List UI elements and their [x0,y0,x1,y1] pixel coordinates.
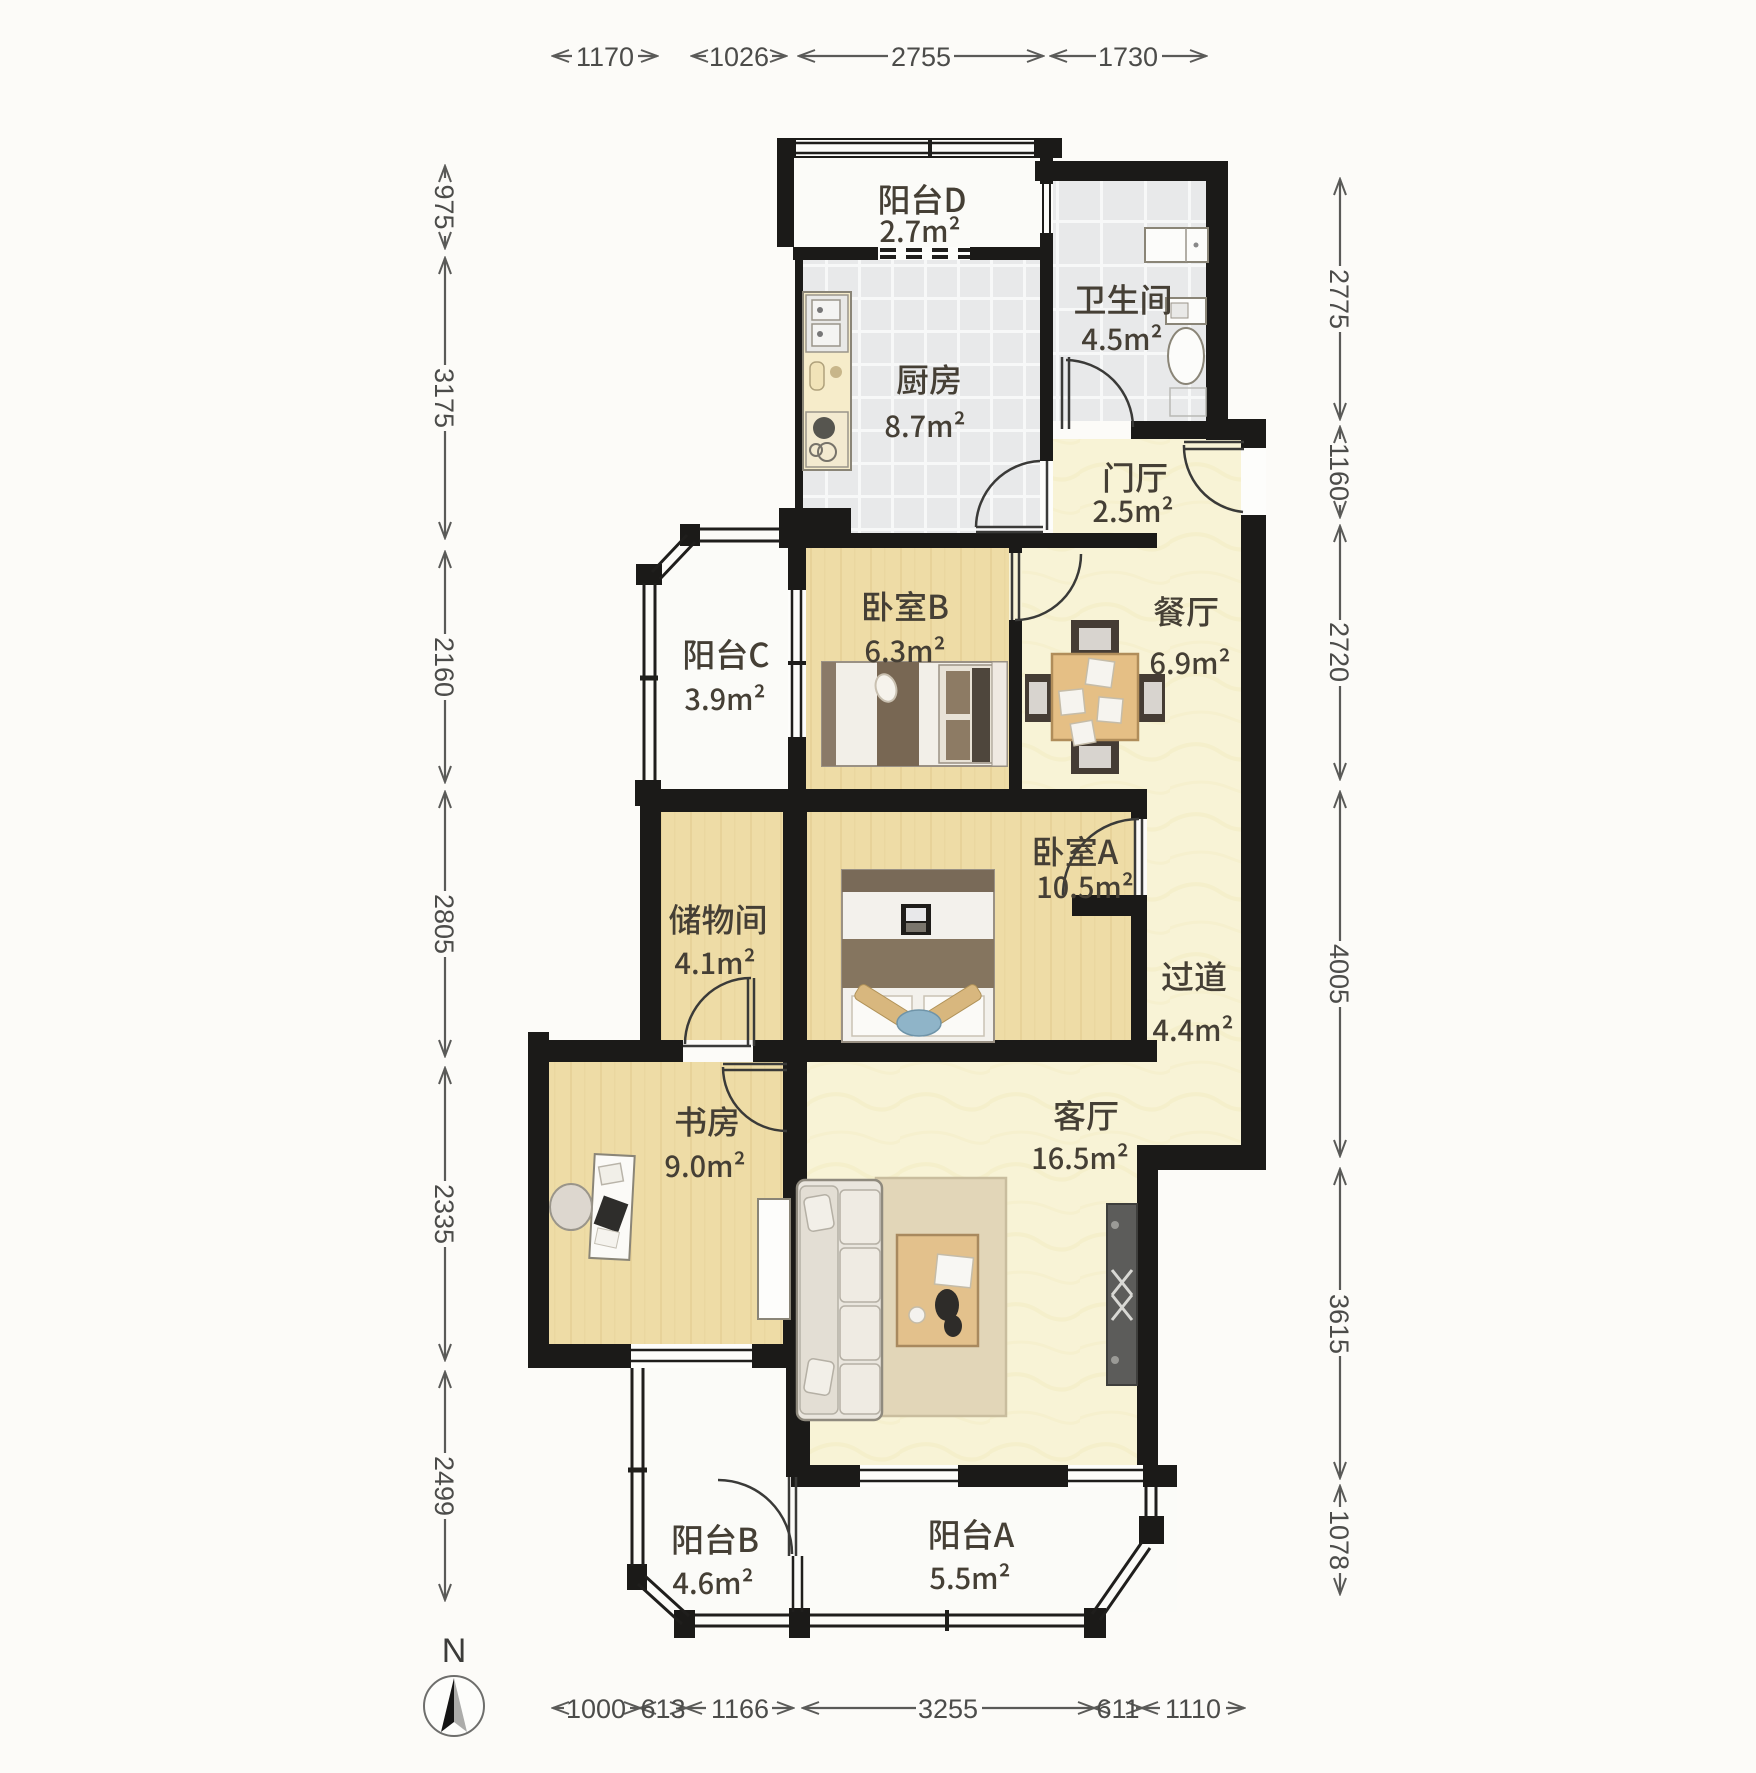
svg-text:3175: 3175 [429,368,459,428]
svg-text:2720: 2720 [1324,622,1354,682]
svg-text:975: 975 [429,184,459,229]
svg-text:613: 613 [640,1694,685,1724]
svg-text:2499: 2499 [429,1456,459,1516]
svg-text:611: 611 [1096,1694,1139,1724]
svg-text:1078: 1078 [1324,1510,1354,1570]
svg-text:1166: 1166 [711,1694,769,1724]
svg-text:1730: 1730 [1098,42,1158,72]
svg-text:2805: 2805 [429,894,459,954]
svg-text:3255: 3255 [918,1694,978,1724]
svg-text:1000: 1000 [566,1694,626,1724]
svg-text:N: N [442,1632,467,1670]
svg-text:1170: 1170 [576,42,634,72]
svg-text:2775: 2775 [1324,269,1354,329]
svg-text:2755: 2755 [891,42,951,72]
svg-text:1110: 1110 [1165,1694,1221,1724]
svg-text:3615: 3615 [1324,1294,1354,1354]
svg-text:2335: 2335 [429,1184,459,1244]
svg-text:1160: 1160 [1324,443,1354,501]
svg-text:4005: 4005 [1324,944,1354,1004]
svg-text:1026: 1026 [709,42,769,72]
svg-text:2160: 2160 [429,637,459,697]
